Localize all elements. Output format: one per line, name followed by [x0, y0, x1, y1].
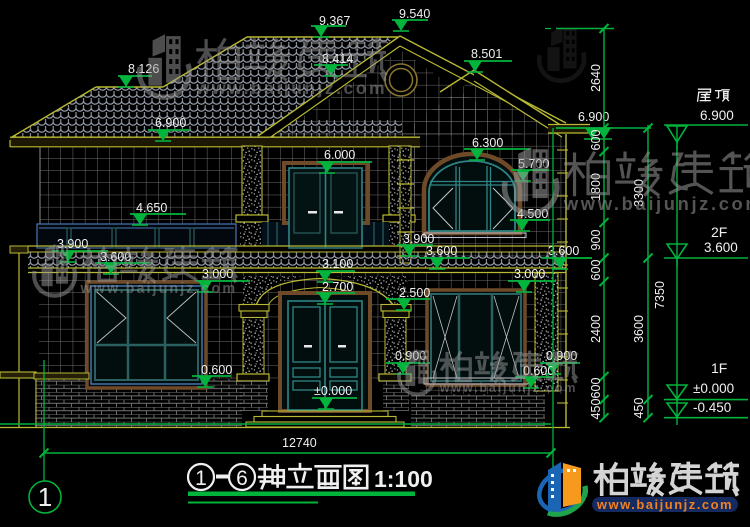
svg-text:2640: 2640 [589, 64, 603, 92]
svg-text:4.650: 4.650 [136, 201, 167, 215]
svg-text:6.900: 6.900 [700, 108, 734, 123]
svg-text:3600: 3600 [632, 315, 646, 343]
svg-text:1: 1 [195, 467, 207, 490]
svg-text:600: 600 [589, 260, 603, 281]
svg-text:-0.450: -0.450 [693, 400, 731, 415]
svg-text:2400: 2400 [589, 315, 603, 343]
svg-text:0.600: 0.600 [201, 363, 232, 377]
svg-text:www.baijunjz.com: www.baijunjz.com [195, 78, 387, 98]
svg-text:www.baijunjz.com: www.baijunjz.com [80, 281, 238, 297]
svg-text:9.540: 9.540 [399, 7, 430, 21]
svg-text:www.baijunjz.com: www.baijunjz.com [439, 381, 578, 395]
svg-text:600: 600 [589, 130, 603, 151]
svg-text:3.600: 3.600 [426, 244, 457, 258]
svg-text:600: 600 [589, 378, 603, 399]
svg-text:±0.000: ±0.000 [693, 381, 734, 396]
svg-text:3.000: 3.000 [514, 267, 545, 281]
svg-text:3.100: 3.100 [322, 257, 353, 271]
svg-text:1: 1 [38, 482, 52, 512]
svg-text:2F: 2F [711, 224, 727, 240]
svg-text:6.000: 6.000 [324, 148, 355, 162]
svg-text:8.501: 8.501 [471, 47, 502, 61]
svg-text:900: 900 [589, 230, 603, 251]
svg-text:2.700: 2.700 [322, 280, 353, 294]
svg-text:www.baijunjz.com: www.baijunjz.com [563, 193, 750, 214]
svg-text:6.900: 6.900 [155, 116, 186, 130]
svg-text:7350: 7350 [653, 281, 667, 309]
svg-text:2.500: 2.500 [399, 286, 430, 300]
svg-text:6: 6 [236, 467, 248, 490]
svg-text:±0.000: ±0.000 [314, 384, 352, 398]
svg-text:450: 450 [632, 398, 646, 419]
svg-text:3.600: 3.600 [704, 240, 738, 255]
svg-text:www.baijunjz.com: www.baijunjz.com [596, 497, 733, 512]
svg-text:450: 450 [589, 399, 603, 420]
svg-text:1:100: 1:100 [374, 466, 433, 492]
svg-text:6.300: 6.300 [472, 136, 503, 150]
svg-text:1F: 1F [711, 360, 727, 376]
svg-text:12740: 12740 [282, 436, 317, 450]
